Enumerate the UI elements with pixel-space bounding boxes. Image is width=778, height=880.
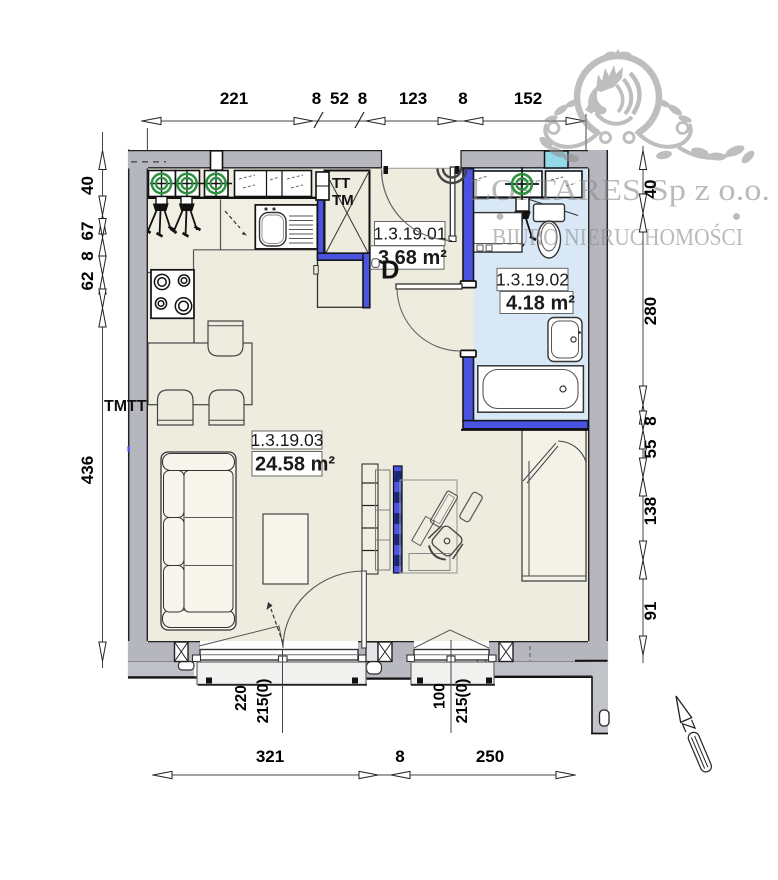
svg-text:91: 91 [641, 602, 660, 621]
svg-text:215(0): 215(0) [454, 679, 471, 724]
svg-text:55: 55 [641, 440, 660, 459]
svg-text:152: 152 [514, 89, 542, 108]
svg-text:4.18 m²: 4.18 m² [506, 293, 575, 315]
svg-text:TT: TT [332, 175, 350, 192]
svg-text:220: 220 [233, 685, 250, 711]
svg-text:8: 8 [458, 89, 467, 108]
svg-text:436: 436 [78, 456, 97, 484]
svg-text:138: 138 [641, 497, 660, 525]
svg-text:1.3.19.03: 1.3.19.03 [251, 430, 324, 450]
svg-text:62: 62 [78, 272, 97, 291]
svg-text:100: 100 [432, 683, 449, 709]
svg-text:250: 250 [476, 747, 504, 766]
svg-text:321: 321 [256, 747, 284, 766]
svg-text:8: 8 [78, 251, 97, 260]
svg-text:8: 8 [395, 747, 404, 766]
svg-text:40: 40 [641, 180, 660, 199]
svg-text:8: 8 [358, 89, 367, 108]
svg-text:24.58 m²: 24.58 m² [255, 454, 335, 476]
svg-text:221: 221 [220, 89, 248, 108]
svg-text:TM: TM [104, 398, 127, 415]
svg-text:280: 280 [641, 297, 660, 325]
svg-text:1.3.19.02: 1.3.19.02 [496, 270, 569, 290]
svg-text:TT: TT [127, 398, 147, 415]
svg-text:BIURO NIERUCHOMOŚCI: BIURO NIERUCHOMOŚCI [492, 223, 743, 251]
svg-text:TM: TM [332, 192, 354, 209]
svg-text:123: 123 [399, 89, 427, 108]
svg-text:67: 67 [78, 222, 97, 241]
svg-text:40: 40 [78, 176, 97, 195]
svg-text:52: 52 [330, 89, 349, 108]
svg-text:8: 8 [312, 89, 321, 108]
svg-text:D: D [381, 257, 399, 285]
svg-text:215(0): 215(0) [255, 679, 272, 724]
svg-text:8: 8 [641, 416, 660, 425]
